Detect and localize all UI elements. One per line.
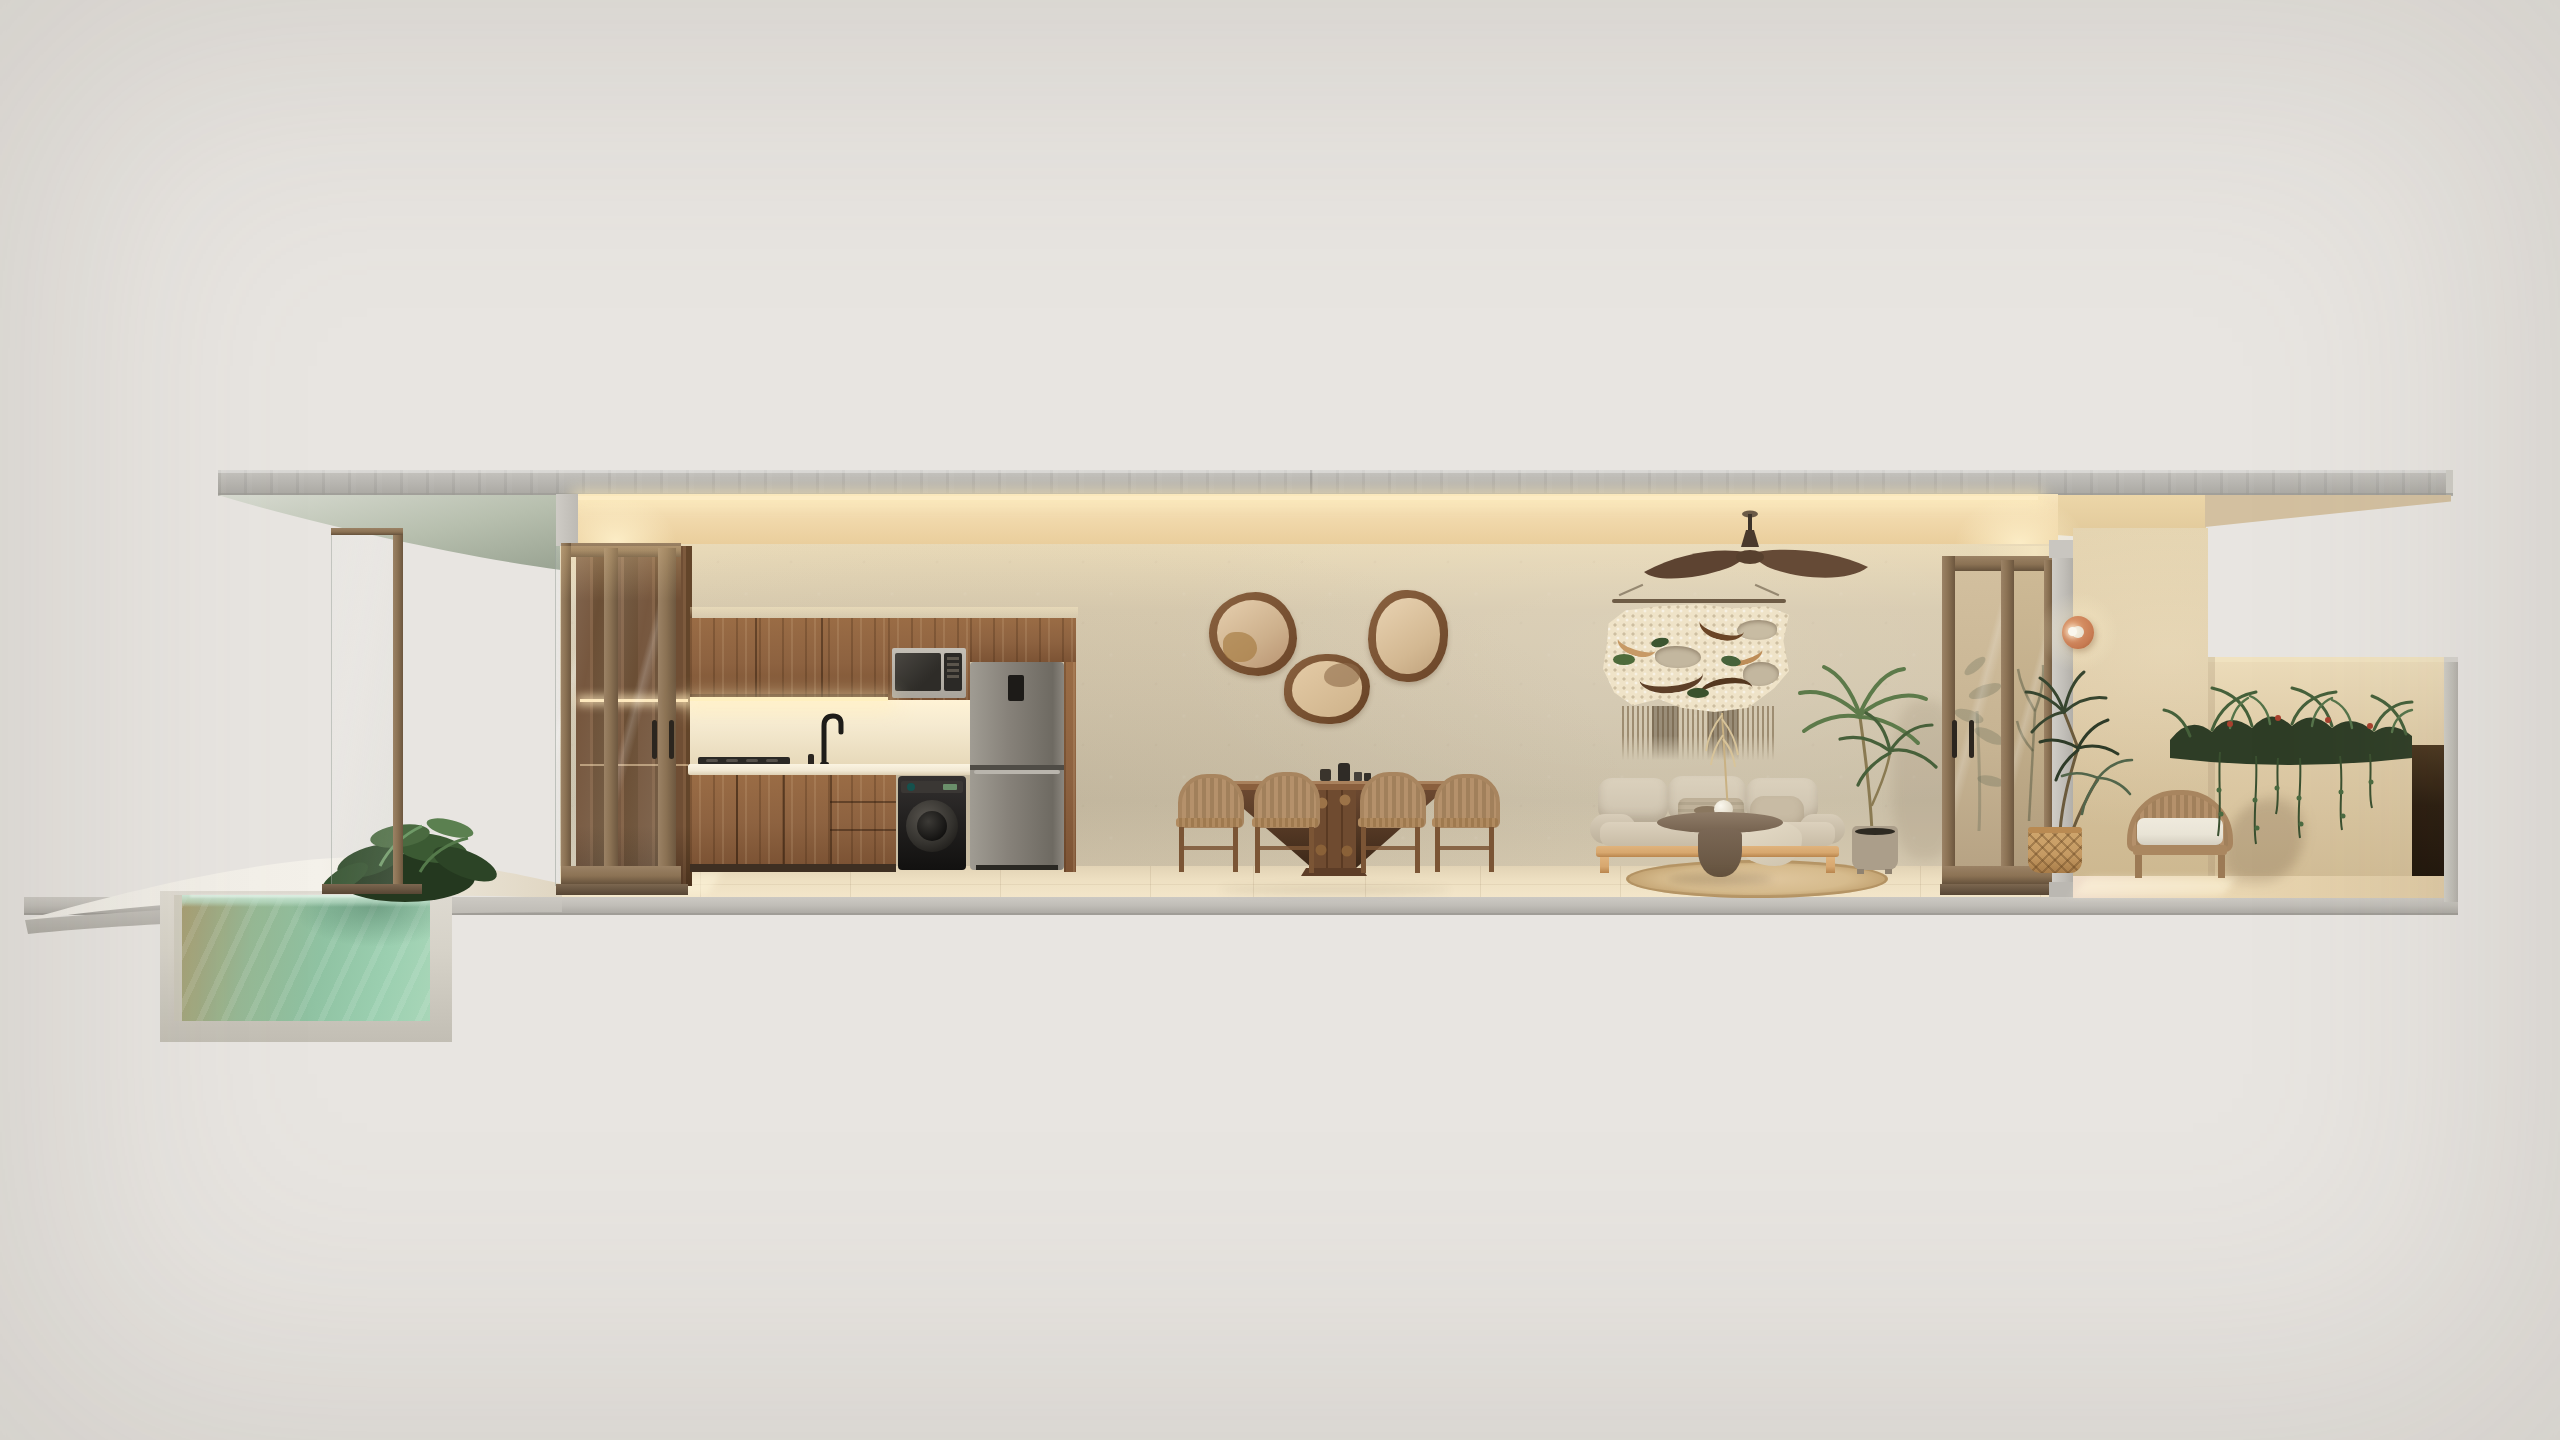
upper-cab-gap-2 [821,618,823,700]
mirror-3-reflection [1324,663,1360,687]
right-door-glass-1 [1955,571,2001,868]
palm-pot-foot-2 [1885,869,1892,874]
planter-vines [2218,752,2372,844]
pool-inner-wall-left [174,895,182,1021]
villa-section-rendering: Photorealistic cross-section rendering o… [0,0,2560,1440]
upper-cab-gap-1 [755,618,757,700]
fringe-shade-1 [1652,706,1678,760]
base-cab-gap-1 [736,775,738,864]
floor-joint-v4 [1150,866,1151,898]
palm-pot-foot-1 [1857,869,1864,874]
chair-3-leg-l [1361,827,1366,873]
ceiling-cove-light [578,496,2038,500]
sconce-lamp-orb [2068,627,2077,636]
chair-2-leg-l [1255,827,1260,873]
left-door-handle-1 [652,720,657,759]
fan-blade-left [1644,551,1748,579]
organic-mirror-2 [1368,590,1448,682]
washer-display [943,784,957,790]
mirror-1-reflection [1223,632,1257,662]
chair-3-seat [1358,818,1424,827]
palm-pot-soil [1855,828,1895,835]
washer-control-panel [901,781,963,793]
base-cab-gap-3 [830,775,832,864]
burner-4 [766,759,778,762]
fridge-handle-bar [974,770,1060,774]
dracaena-basket [2028,827,2082,873]
toe-kick [690,864,896,872]
tableware-jug [1338,763,1350,781]
terracotta-sconce [2062,616,2094,649]
washer-knob [907,783,915,791]
chair-2-seat [1252,818,1318,827]
macrame-accent-brown-2 [1696,607,1747,645]
washer-door-glass [917,811,947,841]
parapet-planter-greenery [2160,680,2460,865]
sprig-stem [1722,713,1728,813]
terrace-floor-sun [2074,878,2236,895]
left-door-sill [556,884,688,895]
chair-3-stretcher [1364,846,1417,850]
macrame-rod [1612,599,1786,603]
kitchen-base-cabinets [690,775,896,864]
microwave [892,648,966,698]
fan-hub [1741,530,1759,547]
fan-center [1736,550,1764,564]
right-door-glass-1-streak [1955,571,2001,868]
mullion-top-block [2049,540,2076,558]
right-door-handle-2 [1969,720,1974,758]
fan-blade-right [1752,550,1868,578]
planter-vine-leaves [2217,780,2374,831]
microwave-buttons [947,657,959,679]
dracaena-plant [2020,660,2135,840]
left-door-glass-1 [571,557,606,867]
chair-2-stretcher [1258,846,1311,850]
dining-floor-shadow [1220,886,1450,894]
open-panel-stile [393,528,403,888]
mirror-3-glass [1292,661,1362,717]
parapet-top-lip [2208,657,2444,662]
open-panel-sill [322,884,422,894]
fan-rod [1748,514,1752,531]
kitchen-counter [688,764,978,775]
pool-water [182,895,430,1021]
open-panel-top-rail [331,528,403,535]
macrame-accent-green-1 [1613,654,1635,665]
tableware-pot [1320,769,1331,781]
armchair-leg-l [2135,855,2142,878]
roof-right-cut-face [2446,470,2453,495]
right-door-mullion [2001,560,2014,884]
corner-concrete-post [556,494,578,546]
dining-chair-4 [1432,774,1498,874]
palm-pot [1852,826,1898,870]
right-door-sill [1940,884,2056,895]
dining-chair-3 [1358,772,1424,874]
potted-palm-leaves [1790,655,1950,840]
base-cab-gap-2 [783,775,785,864]
microwave-door [895,653,941,691]
tall-cabinet-over-fridge [970,618,1076,662]
washing-machine [898,776,966,870]
pedestal-hole-4 [1342,846,1353,857]
left-door-glass-2 [618,557,658,867]
microwave-controls [944,653,962,691]
mirror-1-glass [1217,600,1289,668]
left-door-bottom-rail [561,866,681,884]
left-door-warm-reflection [561,546,681,601]
chair-4-stretcher [1438,846,1491,850]
left-door-glass-streak [618,557,658,867]
under-cabinet-led [690,697,888,701]
chair-4-seat [1432,818,1498,827]
fridge [970,662,1064,870]
burner-3 [746,759,758,762]
coffee-table-shadow [1668,874,1772,884]
chair-2-leg-r [1309,827,1314,873]
kitchen-upper-cabinets [690,618,888,700]
washer-door-ring [906,800,958,852]
sofa-leg-left [1600,857,1609,873]
fridge-display [1008,675,1024,701]
mirror-2-glass [1376,598,1440,674]
right-door-head [1942,556,2052,571]
fridge-side-panel [1064,662,1076,872]
basket-rim [2028,827,2082,833]
right-door-handle-1 [1952,720,1957,758]
right-edge-top-cap [2444,657,2458,662]
kitchen-faucet [806,708,854,772]
roof-top-highlight [218,470,2453,473]
roof-right-soffit-wedge [2205,495,2451,527]
roof-seam [1310,470,1312,495]
chair-1-stretcher [1182,846,1235,850]
floor-joint-v10 [1920,866,1921,898]
dining-chair-2 [1252,772,1318,874]
dracaena-leaves-1 [2026,672,2106,732]
chair-3-leg-r [1415,827,1420,873]
burner-1 [706,759,718,762]
drawer-gap-2 [830,829,896,831]
plunge-pool-section [160,891,452,1042]
roof-texture [218,470,2453,495]
roof-slab [218,470,2453,495]
mullion-bottom-block [2049,882,2076,897]
left-door-handle-2 [669,720,674,759]
organic-mirror-3 [1284,654,1370,724]
faucet-neck [824,716,841,766]
drawer-gap-1 [830,801,896,803]
fridge-feet [976,865,1058,870]
dried-sprig [1690,695,1760,815]
coffee-table-stem [1698,829,1742,877]
sofa-leg-right [1826,857,1835,873]
ceiling-fan [1630,505,1880,595]
open-glass-panel [331,530,395,886]
burner-2 [726,759,738,762]
pedestal-hole-2 [1340,795,1351,806]
floor-joint-v3 [1000,866,1001,898]
dining-chair-1 [1176,774,1242,874]
chair-1-seat [1176,818,1242,827]
